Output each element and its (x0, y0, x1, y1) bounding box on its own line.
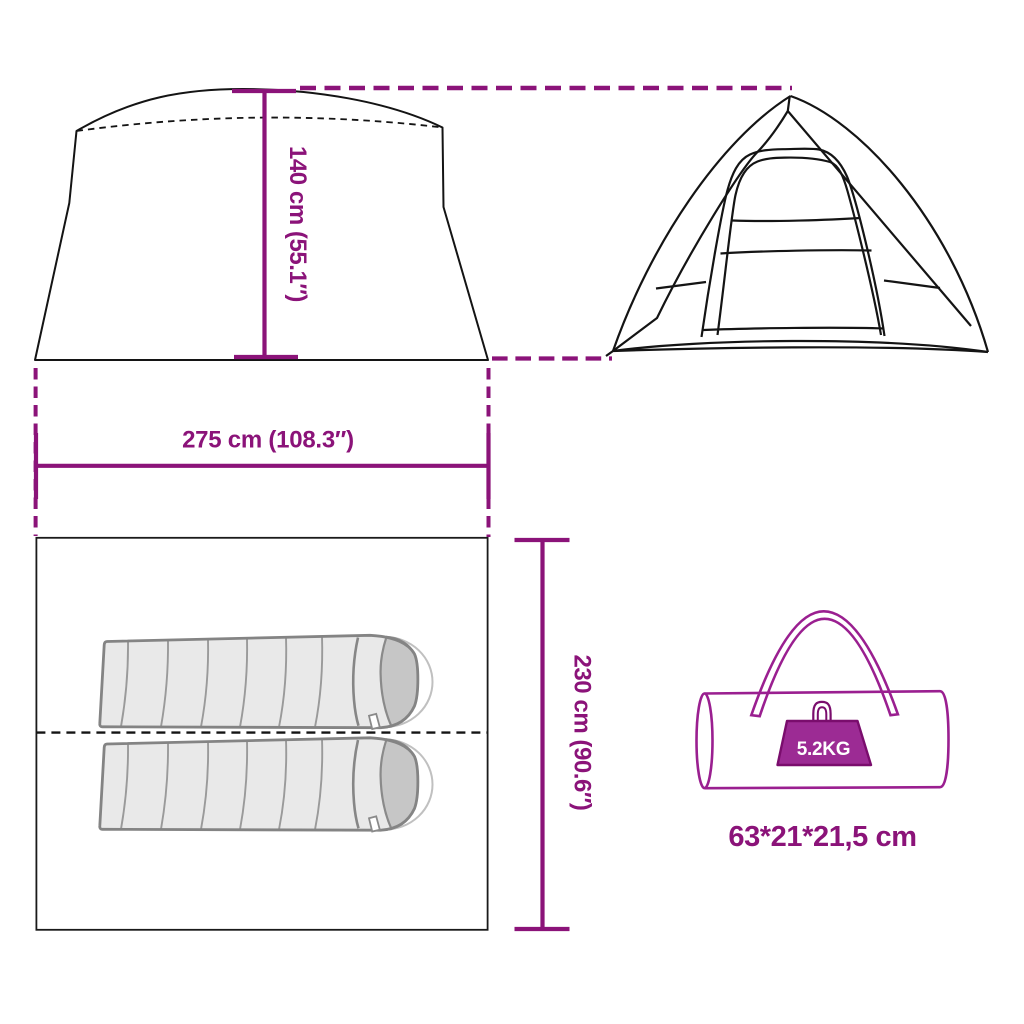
svg-text:5.2KG: 5.2KG (797, 739, 850, 760)
svg-text:275 cm (108.3″): 275 cm (108.3″) (182, 427, 354, 454)
svg-text:63*21*21,5 cm: 63*21*21,5 cm (728, 821, 916, 853)
svg-text:140 cm (55.1″): 140 cm (55.1″) (284, 146, 311, 302)
svg-text:230 cm (90.6″): 230 cm (90.6″) (569, 655, 596, 811)
